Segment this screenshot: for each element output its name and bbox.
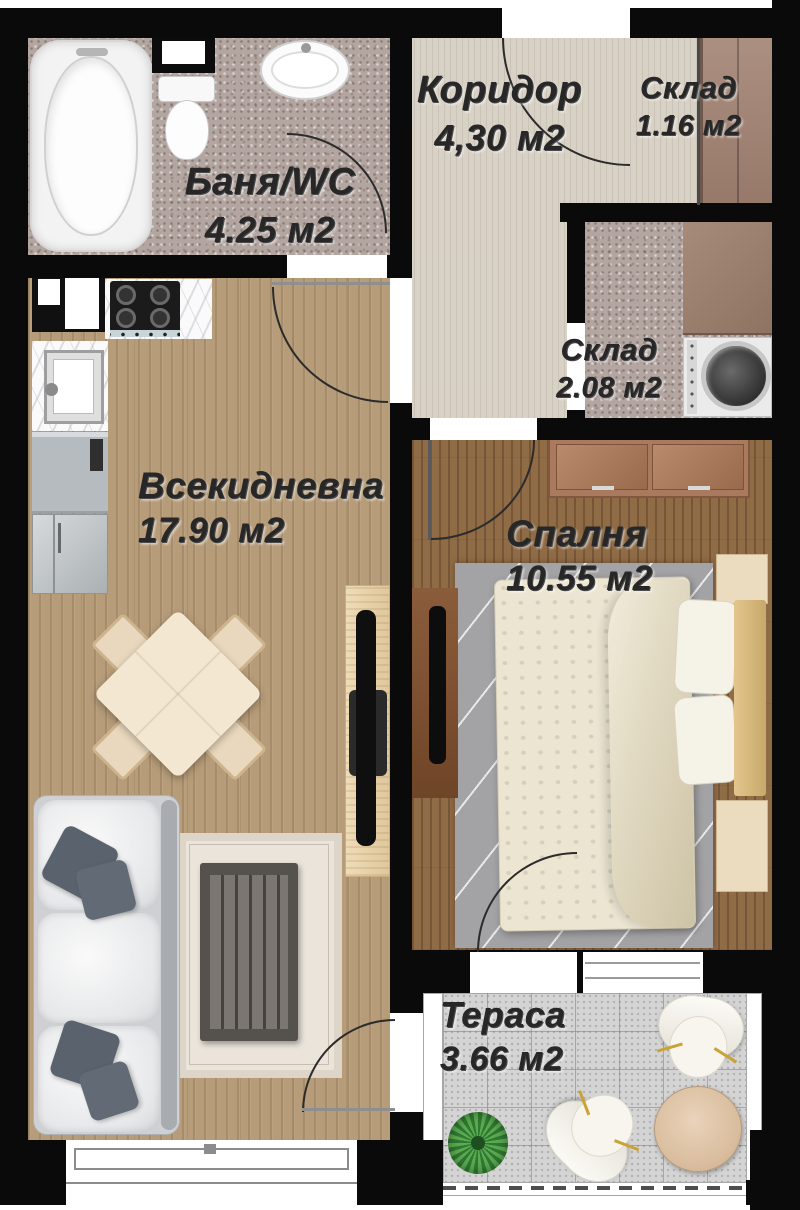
dresser bbox=[548, 436, 750, 498]
terrace-door-window-opening bbox=[470, 952, 703, 993]
fridge bbox=[32, 514, 108, 594]
bedroom-door-opening bbox=[430, 418, 537, 440]
toilet bbox=[158, 76, 215, 102]
terrace-railing-dashes bbox=[443, 1186, 746, 1190]
stove bbox=[110, 281, 180, 337]
floor-plan: Баня/WC 4.25 м2 Коридор 4,30 м2 Склад 1.… bbox=[0, 0, 800, 1210]
room-name: Склад bbox=[524, 330, 694, 370]
toilet-bowl bbox=[165, 100, 209, 160]
nightstand bbox=[716, 800, 768, 892]
bedroom-tv bbox=[429, 606, 446, 764]
coffee-table-slats bbox=[210, 875, 288, 1029]
dresser-handle bbox=[688, 486, 710, 490]
cabinet-door bbox=[65, 277, 99, 329]
room-label-storage-large: Склад 2.08 м2 bbox=[524, 330, 694, 407]
burner bbox=[150, 285, 170, 305]
window-mullion bbox=[577, 952, 583, 993]
room-area: 10.55 м2 bbox=[506, 557, 726, 602]
wall-niche-glass bbox=[162, 41, 205, 64]
bathroom-door-opening bbox=[287, 255, 387, 278]
room-name: Всекидневна bbox=[138, 462, 398, 509]
door-leaf bbox=[428, 440, 431, 540]
bathtub-faucet bbox=[76, 48, 108, 56]
door-leaf bbox=[302, 1108, 395, 1111]
sofa-cushion bbox=[38, 913, 160, 1023]
room-label-terrace: Тераса 3.66 м2 bbox=[440, 992, 630, 1082]
room-label-bedroom: Спалня 10.55 м2 bbox=[506, 510, 726, 602]
window-frame-line bbox=[585, 977, 700, 979]
fridge-handle bbox=[58, 523, 61, 553]
storage-counter bbox=[683, 222, 772, 335]
bathtub-basin bbox=[44, 56, 138, 236]
room-area: 4,30 м2 bbox=[402, 115, 597, 161]
room-name: Коридор bbox=[402, 66, 597, 115]
room-area: 4.25 м2 bbox=[150, 207, 390, 253]
bed-pillow bbox=[674, 598, 739, 695]
room-label-storage-small: Склад 1.16 м2 bbox=[606, 68, 771, 145]
room-area: 17.90 м2 bbox=[138, 509, 398, 554]
washer-drum bbox=[701, 341, 771, 411]
room-name: Склад bbox=[606, 68, 771, 108]
burner bbox=[116, 285, 136, 305]
room-area: 3.66 м2 bbox=[440, 1038, 630, 1082]
dishwasher-panel bbox=[90, 439, 103, 471]
coffee-table bbox=[200, 863, 298, 1041]
bathtub bbox=[30, 40, 152, 252]
washing-machine bbox=[683, 337, 772, 417]
terrace-table bbox=[654, 1086, 742, 1172]
plant bbox=[448, 1112, 508, 1174]
living-window-sill bbox=[66, 1182, 357, 1184]
living-corridor-door-opening bbox=[390, 278, 412, 403]
room-name: Тераса bbox=[440, 992, 630, 1038]
window-frame-line bbox=[585, 962, 700, 964]
bathroom-sink bbox=[260, 40, 350, 100]
bed-pillow bbox=[673, 694, 739, 786]
door-leaf bbox=[272, 282, 390, 285]
room-label-corridor: Коридор 4,30 м2 bbox=[402, 66, 597, 161]
dresser-door bbox=[556, 444, 648, 490]
stove-knob-strip bbox=[110, 330, 180, 337]
kitchen-sink-basin bbox=[53, 359, 94, 414]
bathroom-sink-basin bbox=[271, 51, 339, 89]
burner bbox=[116, 308, 136, 328]
room-name: Баня/WC bbox=[150, 158, 390, 207]
burner bbox=[150, 308, 170, 328]
fridge-door-line bbox=[53, 515, 55, 593]
wall-niche bbox=[152, 33, 215, 73]
entrance-door-opening bbox=[502, 8, 630, 38]
cabinet-door bbox=[38, 279, 60, 305]
bathroom-sink-faucet bbox=[301, 43, 311, 53]
kitchen-cabinet bbox=[32, 273, 105, 332]
room-name: Спалня bbox=[506, 510, 726, 557]
plant-center bbox=[471, 1136, 485, 1150]
room-label-bathroom: Баня/WC 4.25 м2 bbox=[150, 158, 390, 253]
railing-post bbox=[423, 1182, 439, 1205]
terrace-chair bbox=[650, 990, 748, 1093]
kitchen-sink bbox=[44, 350, 104, 424]
wall bbox=[0, 8, 28, 1205]
dishwasher bbox=[32, 432, 108, 513]
dresser-door bbox=[652, 444, 744, 490]
wall bbox=[560, 203, 772, 222]
headboard bbox=[734, 600, 766, 796]
sofa-frame bbox=[161, 800, 177, 1130]
living-window-mullion bbox=[204, 1144, 216, 1154]
tv bbox=[356, 610, 376, 846]
dresser-handle bbox=[592, 486, 614, 490]
room-area: 1.16 м2 bbox=[606, 108, 771, 145]
room-area: 2.08 м2 bbox=[524, 370, 694, 407]
railing-post bbox=[746, 1180, 762, 1205]
kitchen-faucet bbox=[45, 383, 58, 396]
room-label-living-room: Всекидневна 17.90 м2 bbox=[138, 462, 398, 554]
